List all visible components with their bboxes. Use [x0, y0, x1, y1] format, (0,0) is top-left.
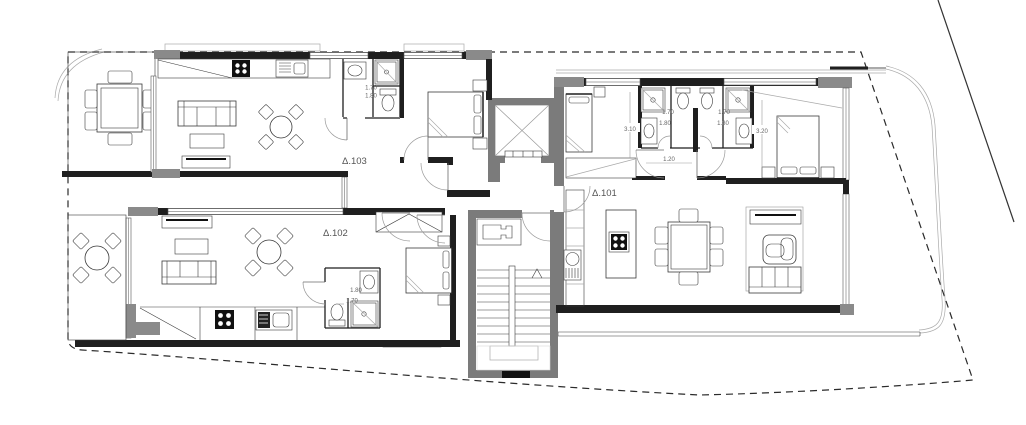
- elevator-shaft: [488, 98, 556, 182]
- toilet-symbol: [329, 304, 345, 326]
- bed: [428, 92, 483, 137]
- door-arc: [700, 136, 712, 148]
- nightstand: [438, 236, 450, 246]
- chair: [245, 260, 262, 277]
- floor-plan-canvas: 1.70 1.80 Δ.103: [0, 0, 1026, 425]
- bed: [777, 116, 819, 178]
- apartment-101: 3.10 1.70 1.80: [554, 77, 854, 315]
- shower-symbol: [351, 301, 378, 327]
- chair: [710, 249, 723, 266]
- bathroom-103: 1.70 1.80: [325, 59, 400, 140]
- chair: [710, 227, 723, 244]
- sofa: [749, 267, 801, 293]
- floor-plan-drawing: 1.70 1.80 Δ.103: [0, 0, 1026, 425]
- stair-steps: [477, 266, 550, 370]
- door-arc: [303, 282, 325, 304]
- curb-line: [55, 49, 945, 333]
- bathroom-101-left: 1.70 1.80: [641, 88, 690, 144]
- dimension-label: 1.80: [717, 121, 729, 127]
- apartment-label-102: Δ.102: [323, 228, 348, 239]
- dimension-label: 1.20: [663, 157, 675, 163]
- dimension-label: 1.80: [350, 288, 362, 294]
- nightstand: [473, 80, 487, 91]
- stove-symbol: [609, 232, 629, 252]
- stair-direction-arrow: [532, 269, 542, 278]
- kitchen-counter: [158, 59, 330, 78]
- dimension-label: 1.70: [718, 110, 730, 116]
- kitchen-island: [606, 210, 636, 278]
- living-area: [746, 207, 803, 293]
- terrace-102: [68, 215, 126, 340]
- chair: [258, 104, 274, 120]
- chair: [655, 249, 668, 266]
- washbasin-symbol: [736, 118, 752, 144]
- bathroom-101-right: 1.70 1.80: [700, 88, 752, 144]
- dimension-label: 3.20: [756, 129, 768, 135]
- chair: [85, 90, 97, 108]
- sink-symbol: [256, 310, 292, 330]
- chair: [277, 228, 294, 245]
- shower-symbol: [726, 88, 750, 112]
- chair: [679, 272, 698, 285]
- chair: [85, 112, 97, 130]
- dimension-label: 3.10: [624, 127, 636, 133]
- nightstand: [473, 138, 487, 149]
- washbasin-symbol: [641, 118, 657, 144]
- terrace-103: [62, 52, 157, 177]
- dining-table: [655, 209, 723, 285]
- toilet-symbol: [700, 88, 714, 109]
- dimension-label: 1.70: [662, 110, 674, 116]
- nightstand: [594, 87, 605, 97]
- door-arc: [697, 150, 725, 178]
- round-table: [258, 104, 304, 150]
- apartment-103: 1.70 1.80 Δ.103: [62, 50, 492, 208]
- door-arc: [658, 136, 670, 148]
- coffee-table: [190, 134, 224, 148]
- stove-symbol: [215, 310, 234, 329]
- armchair: [763, 235, 796, 264]
- chair: [73, 267, 90, 284]
- toilet-symbol: [676, 88, 690, 109]
- sink-symbol: [276, 60, 308, 77]
- chair: [288, 104, 304, 120]
- coffee-table: [175, 239, 208, 254]
- shower-symbol: [641, 88, 665, 112]
- chair: [277, 260, 294, 277]
- staircase: [468, 210, 558, 378]
- shower-symbol: [375, 60, 398, 84]
- wardrobe: [566, 158, 636, 178]
- balcony-edge: [558, 332, 920, 336]
- dimension-label: 1.80: [365, 94, 377, 100]
- stove-symbol: [232, 60, 250, 77]
- toilet-symbol: [380, 89, 396, 111]
- chair: [108, 71, 132, 83]
- chair: [258, 134, 274, 150]
- dimension-label: 1.80: [659, 121, 671, 127]
- door-arc: [404, 136, 428, 160]
- door-arc: [325, 118, 347, 140]
- laundry-sink-symbol: [564, 250, 581, 280]
- bathroom-102: 1.80 1.70: [303, 268, 380, 328]
- nightstand: [762, 167, 775, 178]
- round-table: [73, 233, 122, 284]
- apartment-label-103: Δ.103: [342, 156, 367, 167]
- kitchen-counter: [564, 190, 584, 306]
- nightstand: [438, 295, 450, 305]
- dimension-3-10: 3.10: [620, 92, 640, 158]
- washbasin-symbol: [360, 271, 378, 293]
- dimension-1-20: 1.20: [646, 154, 692, 163]
- tv-stand: [182, 156, 230, 168]
- chair: [655, 227, 668, 244]
- tv-stand: [162, 216, 212, 228]
- electric-meter-symbol: [477, 219, 521, 245]
- apartment-label-101: Δ.101: [592, 188, 617, 199]
- round-table: [245, 228, 294, 277]
- chair: [73, 233, 90, 250]
- road-edge-line: [938, 0, 1014, 222]
- chair: [245, 228, 262, 245]
- sofa: [162, 261, 216, 284]
- door-arc: [522, 213, 550, 241]
- sofa: [178, 101, 236, 126]
- chair: [288, 134, 304, 150]
- tv-stand: [750, 210, 801, 224]
- bed: [566, 94, 592, 152]
- chair: [105, 267, 122, 284]
- chair: [108, 133, 132, 145]
- bed: [406, 248, 452, 293]
- door-arc: [421, 163, 448, 190]
- dining-table: [85, 71, 155, 145]
- elevator-door-icon: [505, 151, 542, 157]
- washbasin-symbol: [344, 62, 366, 79]
- kitchen-counter: [140, 307, 325, 340]
- chair: [105, 233, 122, 250]
- chair: [679, 209, 698, 222]
- apartment-102: 1.80 1.70 Δ.102: [68, 207, 460, 347]
- dimension-3-20: 3.20: [752, 100, 772, 168]
- nightstand: [821, 167, 834, 178]
- dimension-label: 1.70: [365, 86, 377, 92]
- stair-exit-door: [502, 371, 530, 378]
- dimension-label: 1.70: [346, 299, 358, 305]
